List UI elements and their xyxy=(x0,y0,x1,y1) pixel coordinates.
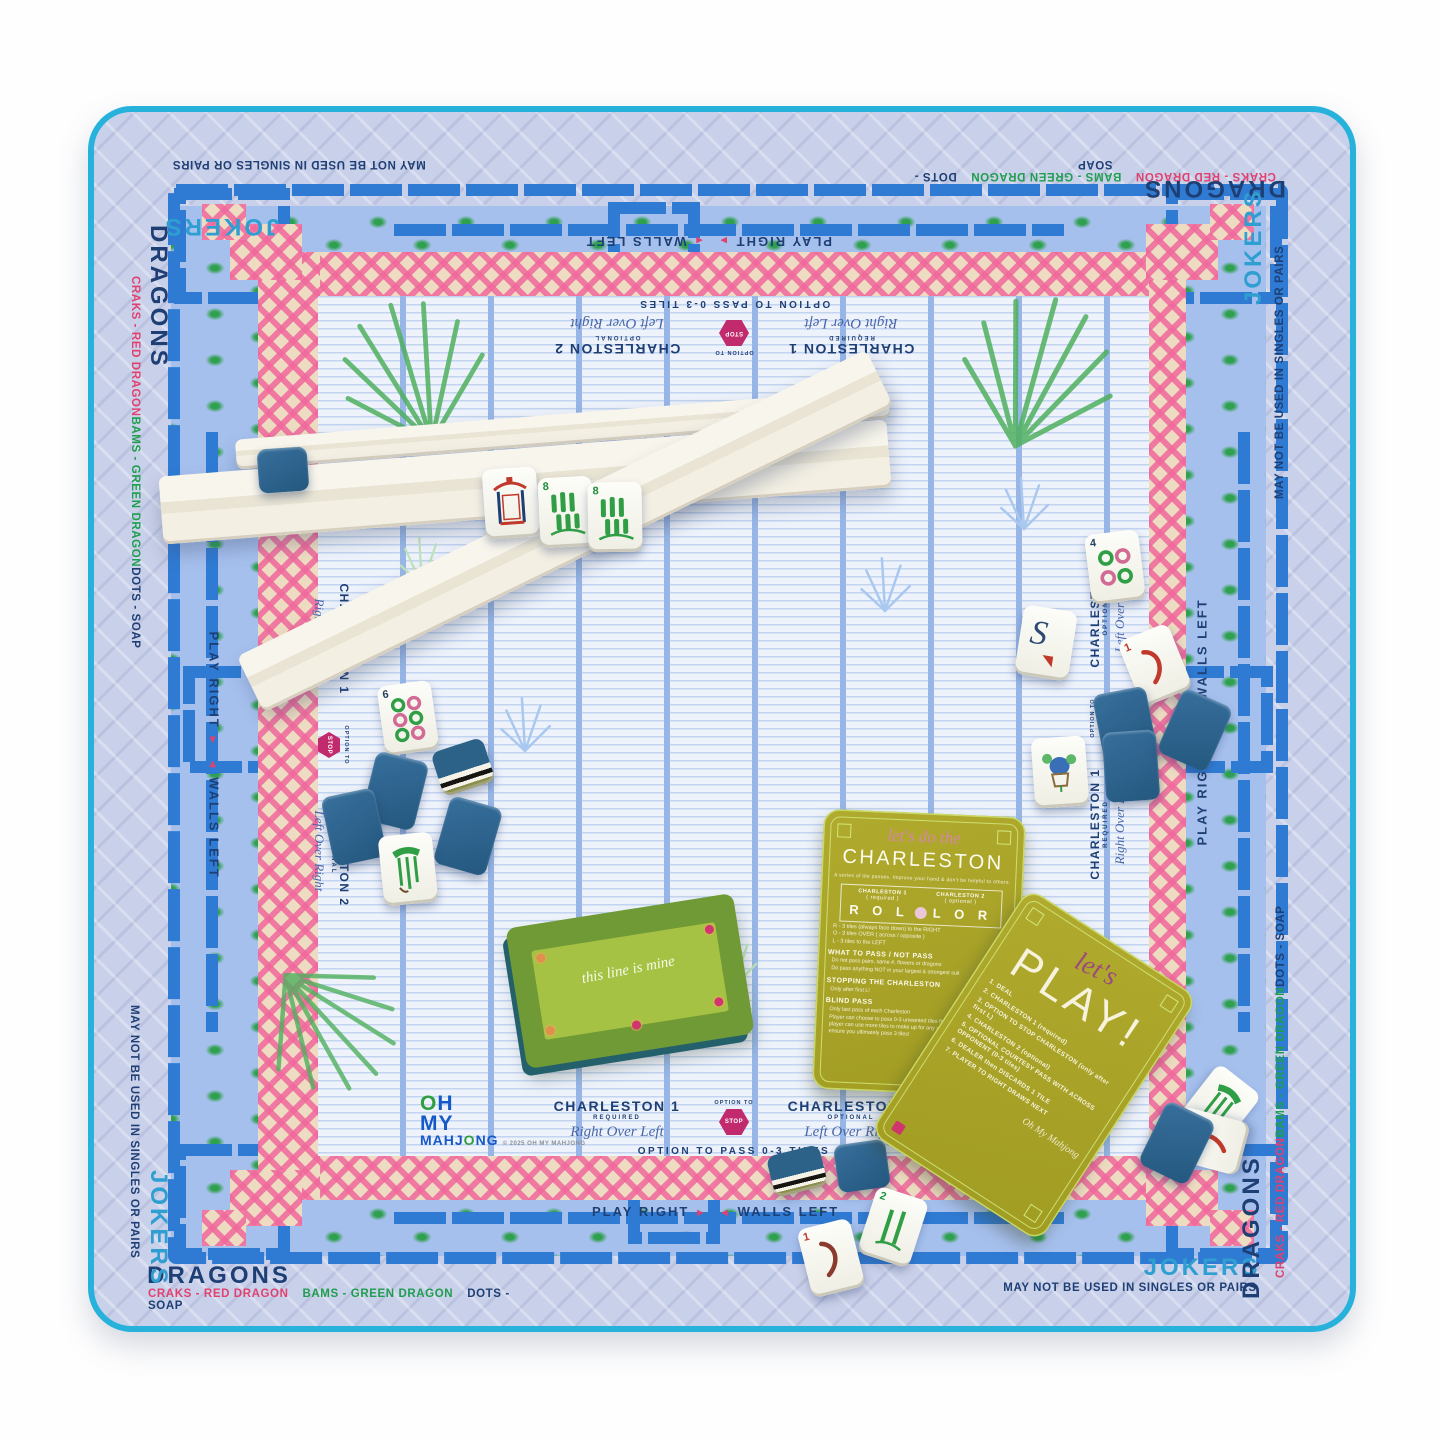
product-photo: MAY NOT BE USED IN SINGLES OR PAIRS JOKE… xyxy=(0,0,1440,1440)
tile-number: 6 xyxy=(382,689,390,702)
charleston1-sub: REQUIRED xyxy=(776,334,926,340)
option-to-label: OPTION TO xyxy=(343,717,349,773)
arrow-left-icon: ◄ xyxy=(719,1207,732,1219)
tile-pagoda xyxy=(482,466,541,540)
jokers-note-right: MAY NOT BE USED IN SINGLES OR PAIRS xyxy=(1274,222,1286,522)
option-to-label: OPTION TO xyxy=(706,1100,762,1106)
tile-8-bam: 8 xyxy=(537,476,595,549)
charleston2-label: CHARLESTON 2 OPTIONAL Left Over Right xyxy=(542,314,692,357)
dragons-note-right: CRAKS - RED DRAGONBAMS - GREEN DRAGONDOT… xyxy=(1274,902,1288,1282)
jokers-note-top: MAY NOT BE USED IN SINGLES OR PAIRS xyxy=(139,158,459,170)
bams-note: BAMS - GREEN DRAGON xyxy=(129,416,141,567)
palm-sprig xyxy=(854,552,916,614)
wind-mark: ◥ xyxy=(1041,652,1053,669)
pass-note: OPTION TO PASS 0-3 TILES xyxy=(514,1146,954,1157)
palm-sprig xyxy=(994,472,1054,532)
dragons-note-bottom: CRAKS - RED DRAGONBAMS - GREEN DRAGONDOT… xyxy=(148,1288,548,1312)
tile-8-bam: 8 xyxy=(587,482,642,553)
arrow-left-icon: ◄ xyxy=(207,759,219,772)
line-card-script: this line is mine xyxy=(535,945,721,997)
tile-face-down xyxy=(1102,729,1161,803)
arrow-left-icon: ◄ xyxy=(692,234,705,246)
stop-badge: OPTION TO STOP xyxy=(318,717,351,773)
dots-note: DOTS - SOAP xyxy=(1275,906,1287,987)
tile-6-dot: 6 xyxy=(376,680,439,757)
walls-left-label: WALLS LEFT xyxy=(207,777,222,879)
charleston1-label: CHARLESTON 1 REQUIRED Right Over Left xyxy=(776,314,926,357)
dragons-note-left: CRAKS - RED DRAGONBAMS - GREEN DRAGONDOT… xyxy=(128,262,142,662)
dragons-word-top: DRAGONS xyxy=(1114,174,1314,202)
bams-note: BAMS - GREEN DRAGON xyxy=(303,1288,454,1300)
option-to-label: OPTION TO xyxy=(706,349,762,355)
tile-number: 8 xyxy=(592,485,598,497)
tile-flower-lantern xyxy=(1031,735,1090,809)
tile-face-down xyxy=(257,446,310,493)
stop-badge: OPTION TO STOP xyxy=(706,320,762,357)
logo-ng: NG xyxy=(476,1132,499,1148)
logo-my: MY xyxy=(420,1114,586,1134)
charleston1-title: CHARLESTON 1 xyxy=(776,341,926,357)
tile-face-down xyxy=(833,1139,891,1194)
charleston2-title: CHARLESTON 2 xyxy=(542,341,692,357)
walls-left-label: WALLS LEFT xyxy=(1195,598,1210,700)
dragons-word-right: DRAGONS xyxy=(1238,1142,1266,1312)
play-walls-left: PLAY RIGHT ► ◄ WALLS LEFT xyxy=(207,632,222,872)
tile-number: 1 xyxy=(802,1231,811,1244)
jokers-word-left: JOKERS xyxy=(144,1158,172,1298)
jokers-word-right: JOKERS xyxy=(1240,172,1268,322)
bams-note: BAMS - GREEN DRAGON xyxy=(1275,987,1287,1138)
stop-hexagon-icon: STOP xyxy=(719,1109,749,1135)
pass-note: OPTION TO PASS 0-3 TILES xyxy=(514,298,954,309)
palm-sprig xyxy=(494,692,556,754)
play-right-label: PLAY RIGHT xyxy=(592,1204,689,1219)
tile-letter: S xyxy=(1027,614,1050,654)
arrow-right-icon: ► xyxy=(695,1207,708,1219)
arrow-right-icon: ► xyxy=(207,734,219,747)
play-walls-bottom: PLAY RIGHT ► ◄ WALLS LEFT xyxy=(592,1204,832,1219)
play-walls-top: PLAY RIGHT ► ◄ WALLS LEFT xyxy=(592,234,832,249)
lattice-step xyxy=(202,1210,246,1246)
play-right-label: PLAY RIGHT xyxy=(735,234,832,249)
dragons-word-left: DRAGONS xyxy=(144,182,172,412)
tile-south-wind: S ◥ xyxy=(1014,604,1078,682)
stop-badge: OPTION TO STOP xyxy=(706,1098,762,1135)
craks-note: CRAKS - RED DRAGON xyxy=(1275,1138,1287,1279)
logo-o2: O xyxy=(464,1132,476,1148)
tile-4-dot: 4 xyxy=(1084,529,1146,605)
jokers-note-left: MAY NOT BE USED IN SINGLES OR PAIRS xyxy=(128,992,140,1272)
charleston2-sub: OPTIONAL xyxy=(542,334,692,340)
bams-note: BAMS - GREEN DRAGON xyxy=(971,170,1122,182)
tile-number: 8 xyxy=(542,481,549,493)
charleston2-script: Left Over Right xyxy=(542,314,692,331)
tile-1-bam-bird xyxy=(377,831,438,906)
charleston1-script: Right Over Left xyxy=(776,314,926,331)
walls-left-label: WALLS LEFT xyxy=(585,234,687,249)
logo-mahj: MAHJ xyxy=(420,1132,464,1148)
tile-number: 4 xyxy=(1089,537,1097,550)
oh-my-mahjong-logo: OH MY MAHJONG© 2025 OH MY MAHJONG xyxy=(420,1094,586,1148)
play-right-label: PLAY RIGHT xyxy=(207,632,222,729)
line-card-face: this line is mine xyxy=(531,922,729,1040)
arrow-right-icon: ► xyxy=(716,234,729,246)
craks-note: CRAKS - RED DRAGON xyxy=(129,276,141,417)
stop-hexagon-icon: STOP xyxy=(318,732,340,758)
walls-left-label: WALLS LEFT xyxy=(738,1204,840,1219)
charleston-block-top: CHARLESTON 1 REQUIRED Right Over Left OP… xyxy=(514,298,954,357)
logo-copyright: © 2025 OH MY MAHJONG xyxy=(503,1141,586,1147)
lattice-step xyxy=(1146,224,1218,280)
stop-hexagon-icon: STOP xyxy=(719,320,749,346)
dots-note: DOTS - SOAP xyxy=(129,567,141,648)
charleston1-title: CHARLESTON 1 xyxy=(1088,754,1102,894)
